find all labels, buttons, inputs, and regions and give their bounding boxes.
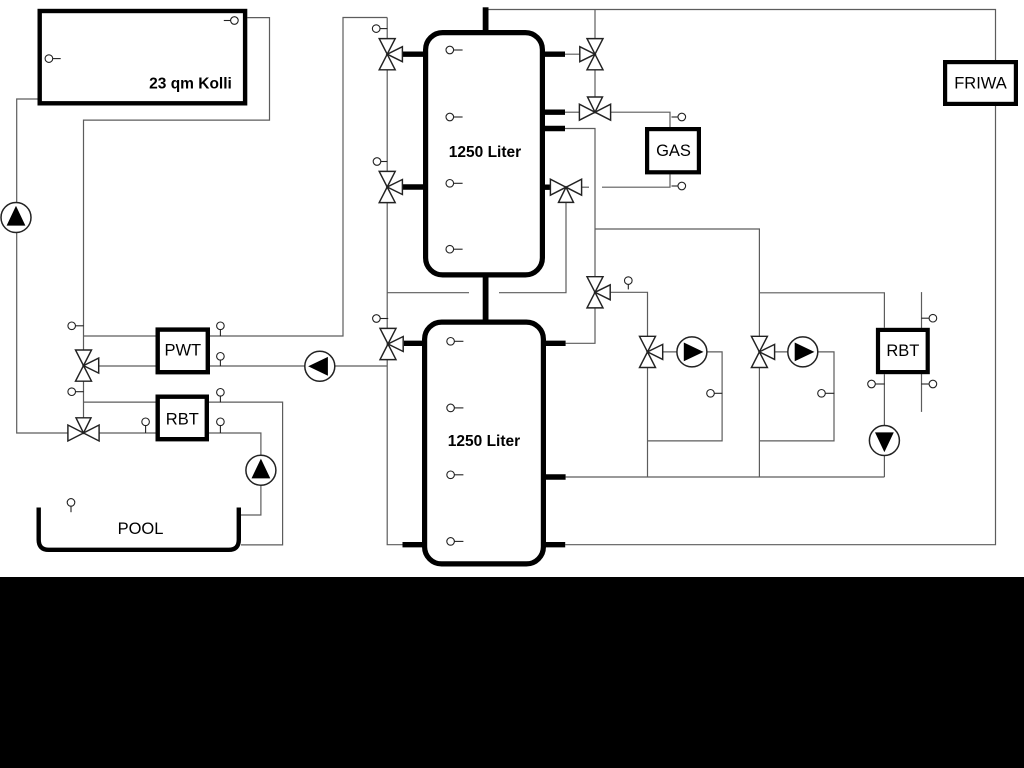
svg-text:PWT: PWT bbox=[164, 342, 201, 360]
svg-text:POOL: POOL bbox=[118, 520, 164, 538]
svg-text:RBT: RBT bbox=[166, 411, 199, 429]
svg-text:23 qm Kolli: 23 qm Kolli bbox=[149, 76, 232, 93]
svg-text:RBT: RBT bbox=[886, 342, 919, 360]
svg-text:1250 Liter: 1250 Liter bbox=[448, 433, 520, 450]
svg-text:GAS: GAS bbox=[656, 142, 691, 160]
svg-text:FRIWA: FRIWA bbox=[954, 75, 1007, 93]
svg-text:1250 Liter: 1250 Liter bbox=[449, 144, 521, 161]
